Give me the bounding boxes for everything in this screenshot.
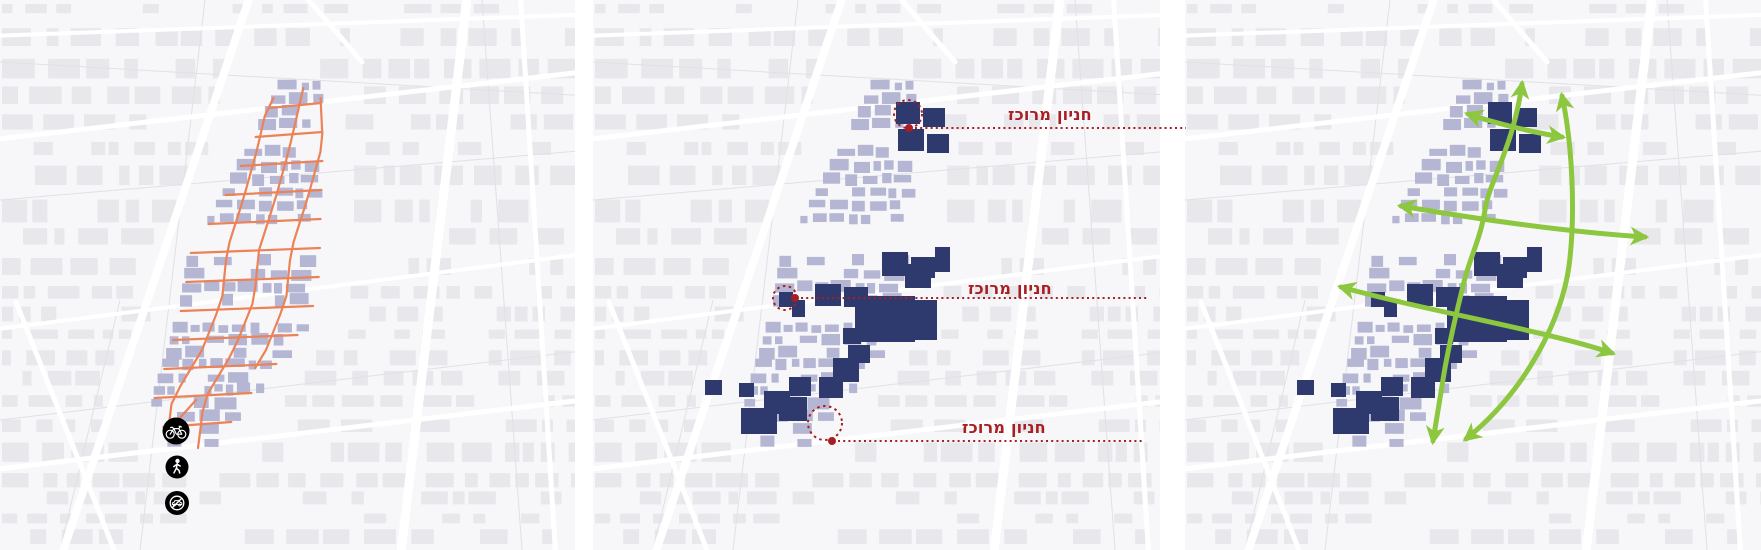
street-network-map-svg bbox=[0, 0, 575, 550]
bicycle-icon bbox=[163, 418, 190, 445]
panel-divider bbox=[575, 0, 593, 550]
parking-map-svg bbox=[593, 0, 1160, 550]
three-panel-urban-diagram: חניון מרוכז חניון מרוכז חניון מרוכז bbox=[0, 0, 1761, 550]
panel-divider bbox=[1160, 0, 1185, 550]
panel-centralized-parking-map bbox=[593, 0, 1160, 550]
mode-icon-column bbox=[163, 418, 190, 516]
panel-street-network-map bbox=[0, 0, 575, 550]
panel-circulation-map bbox=[1185, 0, 1761, 550]
pedestrian-icon bbox=[166, 456, 189, 479]
circulation-map-svg bbox=[1185, 0, 1761, 550]
no-private-cars-icon bbox=[165, 491, 189, 515]
